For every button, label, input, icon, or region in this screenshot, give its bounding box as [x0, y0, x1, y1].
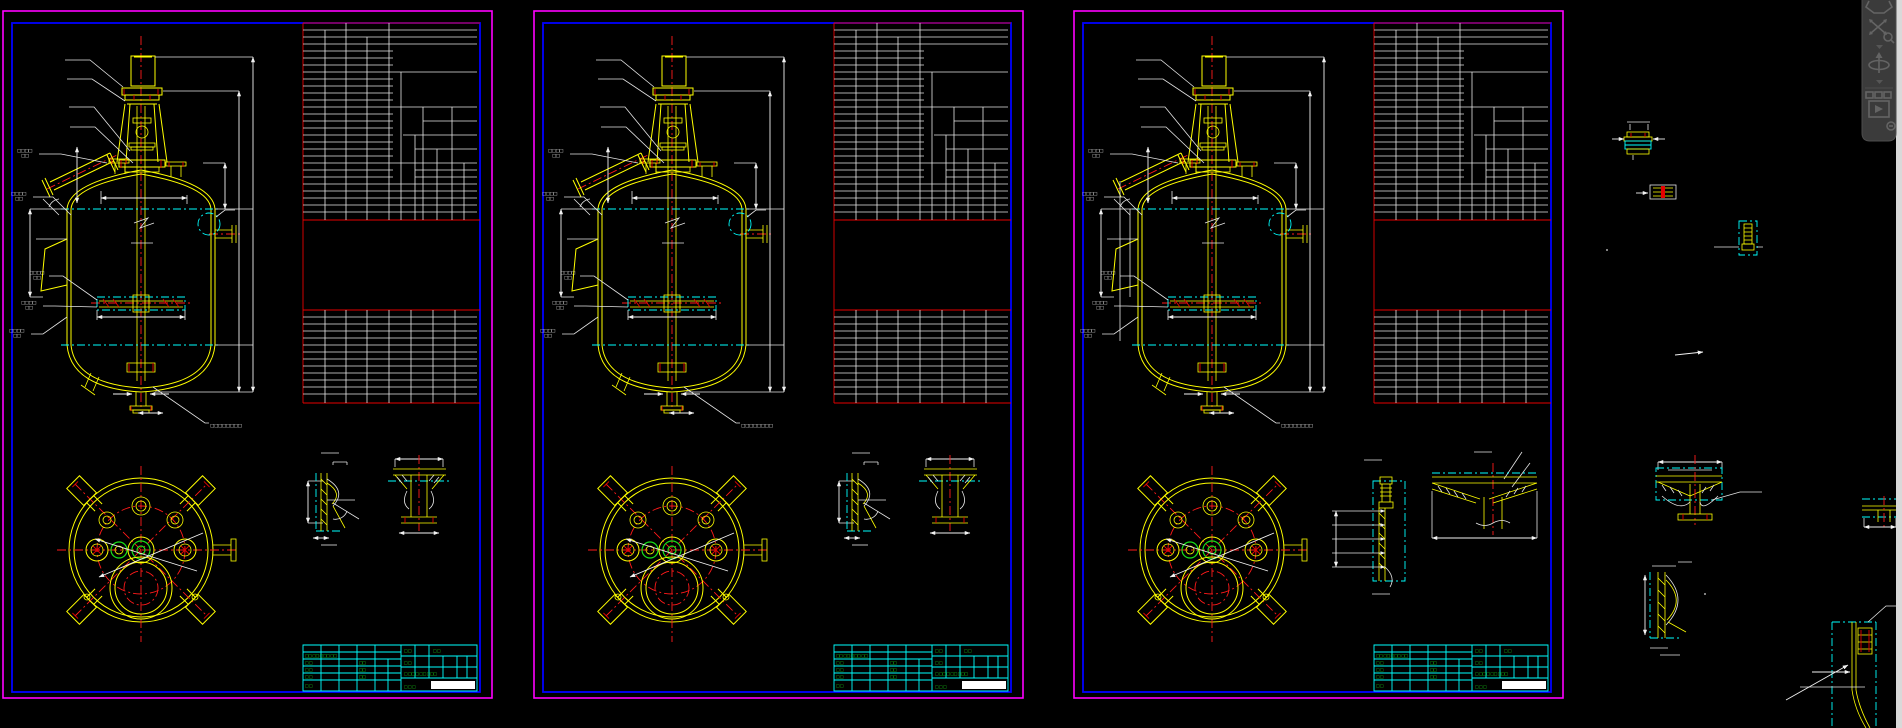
- fragment-wall-section: [1645, 562, 1692, 655]
- right-scrollbar-strip[interactable]: [1896, 0, 1902, 728]
- stray-dot: [1704, 593, 1706, 595]
- stray-dot: [1606, 249, 1608, 251]
- cad-application-window: □□ □□ □□□ □□ □ □ □□ □ □ □□ □ □ □□ □ □ □ …: [0, 0, 1902, 728]
- stray-detail-fragments: [1606, 122, 1901, 728]
- cad-canvas[interactable]: □□ □□ □□□ □□ □ □ □□ □ □ □□ □ □ □□ □ □ □ …: [0, 0, 1902, 728]
- fragment-flange-partial: [1862, 496, 1898, 530]
- fragment-spider-flange: [1656, 455, 1762, 525]
- navigation-bar: [1862, 0, 1896, 141]
- drawing-sheet-2: [534, 11, 1023, 698]
- fragment-arrow: [1675, 352, 1703, 355]
- drawing-sheet-3: [1074, 11, 1563, 698]
- drawing-sheet-1: [3, 11, 492, 698]
- fragment-stud-detail: [1714, 221, 1763, 255]
- fragment-flange-stack: [1612, 122, 1665, 160]
- fragment-pipe-box: [1786, 606, 1900, 728]
- fragment-bearing-block: [1636, 185, 1676, 199]
